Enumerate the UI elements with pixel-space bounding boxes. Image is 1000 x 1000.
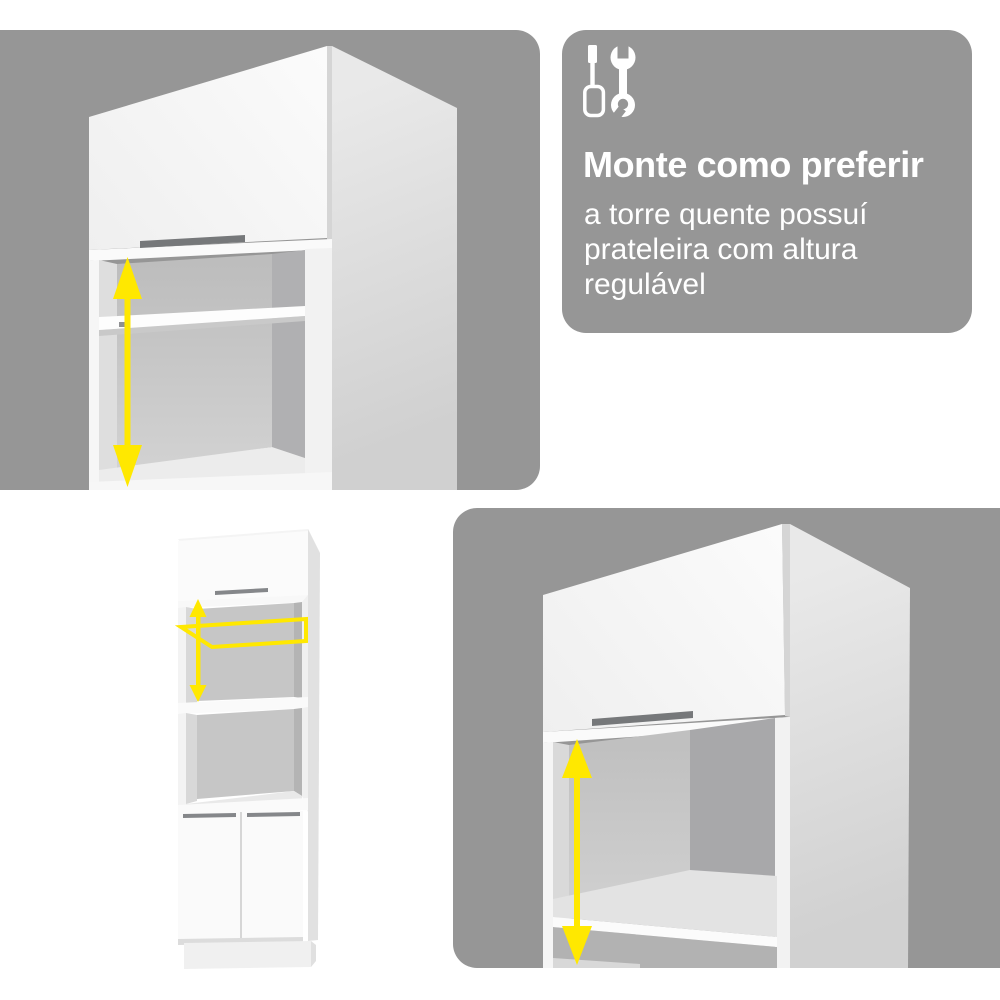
door-gap-line xyxy=(327,46,332,240)
niche-back-wall xyxy=(569,730,690,899)
niche2-right-wall xyxy=(294,708,302,796)
plinth xyxy=(184,941,311,969)
right-frame xyxy=(305,248,332,490)
niche-back-wall xyxy=(117,254,272,470)
plinth-side xyxy=(311,941,316,967)
shelf-pin xyxy=(119,322,125,327)
niche-right-wall xyxy=(272,250,305,458)
flap-door xyxy=(543,524,785,732)
side-panel xyxy=(308,529,320,941)
screwdriver-icon xyxy=(585,45,604,116)
left-frame xyxy=(543,742,553,968)
niche2-right-frame xyxy=(302,707,308,812)
info-card-title: Monte como preferir xyxy=(583,144,963,186)
left-frame xyxy=(178,607,186,711)
niche-left-wall xyxy=(99,260,117,490)
flap-door xyxy=(89,46,327,250)
left-frame-lower xyxy=(178,713,186,813)
side-panel xyxy=(790,524,910,968)
info-card-body: a torre quente possuí prateleira com alt… xyxy=(584,197,904,302)
niche2-back-wall xyxy=(197,709,294,799)
door-split-line xyxy=(240,812,242,940)
full-tower-cabinet-figure xyxy=(170,520,330,975)
tools-icon xyxy=(583,45,637,119)
left-frame xyxy=(89,260,99,490)
niche1-right-wall xyxy=(294,602,302,698)
right-frame xyxy=(775,717,790,968)
cabinet-niche-closeup-figure xyxy=(540,520,914,968)
niche1-right-frame xyxy=(302,595,308,707)
cabinet-upper-module-figure xyxy=(85,40,465,490)
niche1-back-wall xyxy=(197,603,294,701)
wrench-icon xyxy=(611,45,636,119)
niche2-left-wall xyxy=(186,713,197,804)
side-panel xyxy=(332,46,457,490)
